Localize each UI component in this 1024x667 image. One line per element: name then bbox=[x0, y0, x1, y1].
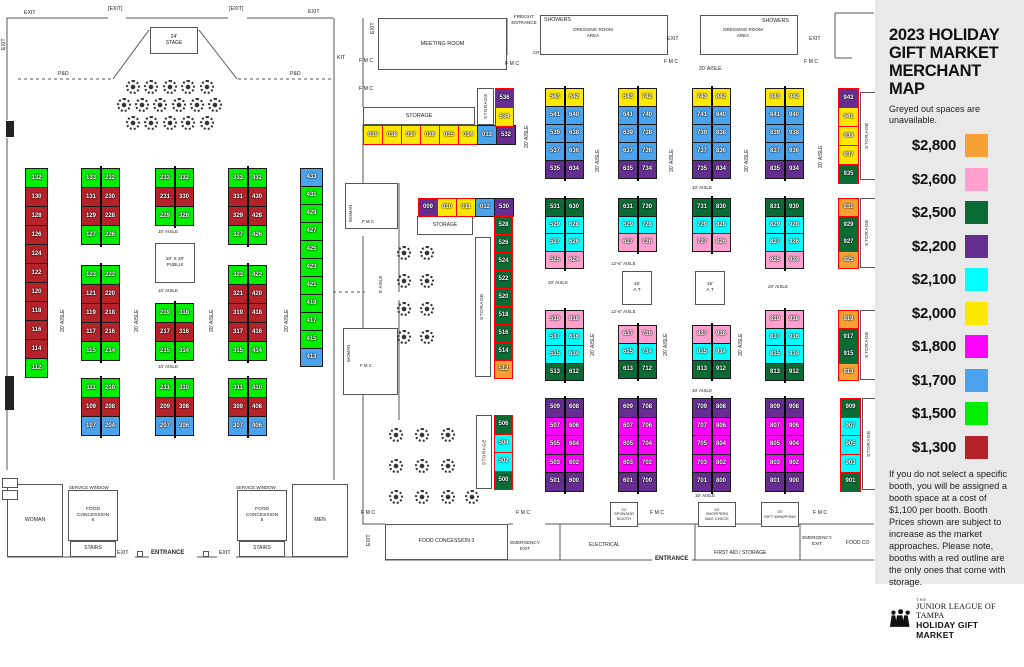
map-label-8-aisle: 8' AISLE bbox=[378, 276, 384, 293]
booth-316[interactable]: 316 bbox=[174, 322, 194, 342]
booth-616[interactable]: 616 bbox=[564, 328, 584, 347]
booth-630[interactable]: 630 bbox=[564, 198, 584, 217]
booth-pair-divider bbox=[637, 396, 639, 494]
booth-204[interactable]: 204 bbox=[100, 416, 120, 436]
booth-314[interactable]: 314 bbox=[174, 341, 194, 361]
booth-706[interactable]: 706 bbox=[637, 417, 657, 437]
booth-701[interactable]: 701 bbox=[692, 472, 712, 492]
booth-612[interactable]: 612 bbox=[564, 363, 584, 382]
booth-809[interactable]: 809 bbox=[765, 398, 785, 418]
booth-315[interactable]: 315 bbox=[228, 341, 248, 361]
booth-705[interactable]: 705 bbox=[692, 435, 712, 455]
booth-429[interactable]: 429 bbox=[300, 204, 323, 223]
booth-pair-divider bbox=[564, 396, 566, 494]
booth-017[interactable]: 017 bbox=[401, 125, 421, 145]
booth-500[interactable]: 500 bbox=[494, 471, 513, 491]
booth-739[interactable]: 739 bbox=[692, 124, 712, 143]
booth-531[interactable]: 531 bbox=[545, 198, 565, 217]
map-label-20-aisle: 20' AISLE bbox=[209, 309, 215, 332]
booth-728[interactable]: 728 bbox=[637, 216, 657, 235]
booth-707[interactable]: 707 bbox=[692, 417, 712, 437]
booth-208[interactable]: 208 bbox=[100, 397, 120, 417]
booth-111[interactable]: 111 bbox=[81, 378, 101, 398]
booth-116[interactable]: 116 bbox=[25, 320, 48, 340]
booth-415[interactable]: 415 bbox=[300, 330, 323, 349]
booth-615[interactable]: 615 bbox=[618, 343, 638, 362]
booth-218[interactable]: 218 bbox=[100, 303, 120, 323]
booth-129[interactable]: 129 bbox=[81, 206, 101, 226]
booth-929[interactable]: 929 bbox=[838, 216, 859, 235]
booth-535[interactable]: 535 bbox=[545, 160, 565, 179]
booth-634[interactable]: 634 bbox=[564, 160, 584, 179]
booth-904[interactable]: 904 bbox=[784, 435, 804, 455]
booth-835[interactable]: 835 bbox=[765, 160, 785, 179]
booth-422[interactable]: 422 bbox=[247, 265, 267, 285]
booth-927[interactable]: 927 bbox=[838, 233, 859, 252]
map-label-woman: WOMAN bbox=[348, 205, 353, 222]
booth-626[interactable]: 626 bbox=[564, 233, 584, 252]
booth-740[interactable]: 740 bbox=[637, 106, 657, 125]
booth-210[interactable]: 210 bbox=[100, 378, 120, 398]
booth-936[interactable]: 936 bbox=[784, 142, 804, 161]
booth-916[interactable]: 916 bbox=[711, 325, 731, 344]
room-food-concession-6: FOOD CONCESSION 6 bbox=[68, 490, 118, 541]
booth-613[interactable]: 613 bbox=[618, 360, 638, 379]
booth-912[interactable]: 912 bbox=[784, 363, 804, 382]
booth-924[interactable]: 924 bbox=[784, 251, 804, 270]
booth-602[interactable]: 602 bbox=[564, 454, 584, 474]
booth-506[interactable]: 506 bbox=[494, 415, 513, 435]
booth-938[interactable]: 938 bbox=[784, 124, 804, 143]
booth-121[interactable]: 121 bbox=[81, 284, 101, 304]
booth-819[interactable]: 819 bbox=[765, 310, 785, 329]
booth-836[interactable]: 836 bbox=[711, 142, 731, 161]
booth-532[interactable]: 532 bbox=[496, 125, 516, 145]
booth-905[interactable]: 905 bbox=[840, 435, 861, 455]
booth-541[interactable]: 541 bbox=[545, 106, 565, 125]
booth-427[interactable]: 427 bbox=[300, 222, 323, 241]
booth-232[interactable]: 232 bbox=[100, 168, 120, 188]
booth-614[interactable]: 614 bbox=[564, 345, 584, 364]
dining-table-icon bbox=[415, 428, 429, 442]
booth-539[interactable]: 539 bbox=[545, 124, 565, 143]
booth-430[interactable]: 430 bbox=[247, 187, 267, 207]
booth-519[interactable]: 519 bbox=[545, 310, 565, 329]
booth-536[interactable]: 536 bbox=[495, 88, 514, 108]
booth-126[interactable]: 126 bbox=[25, 225, 48, 245]
booth-925[interactable]: 925 bbox=[838, 251, 859, 270]
booth-931[interactable]: 931 bbox=[838, 198, 859, 217]
booth-331[interactable]: 331 bbox=[228, 187, 248, 207]
booth-843[interactable]: 843 bbox=[765, 88, 785, 107]
booth-935[interactable]: 935 bbox=[838, 164, 859, 184]
booth-643[interactable]: 643 bbox=[618, 88, 638, 107]
legend-subtitle: Greyed out spaces are unavailable. bbox=[889, 104, 1009, 127]
booth-741[interactable]: 741 bbox=[692, 106, 712, 125]
map-label-showers: SHOWERS bbox=[762, 18, 789, 24]
booth-842[interactable]: 842 bbox=[711, 88, 731, 107]
booth-505[interactable]: 505 bbox=[545, 435, 565, 455]
booth-114[interactable]: 114 bbox=[25, 339, 48, 359]
booth-112[interactable]: 112 bbox=[25, 358, 48, 378]
booth-209[interactable]: 209 bbox=[155, 397, 175, 417]
booth-319[interactable]: 319 bbox=[228, 303, 248, 323]
booth-813[interactable]: 813 bbox=[692, 360, 712, 379]
booth-323[interactable]: 323 bbox=[228, 265, 248, 285]
booth-417[interactable]: 417 bbox=[300, 312, 323, 331]
booth-516[interactable]: 516 bbox=[494, 324, 513, 343]
booth-627[interactable]: 627 bbox=[618, 233, 638, 252]
booth-514[interactable]: 514 bbox=[494, 342, 513, 361]
booth-712[interactable]: 712 bbox=[637, 360, 657, 379]
booth-834[interactable]: 834 bbox=[711, 160, 731, 179]
booth-122[interactable]: 122 bbox=[25, 263, 48, 283]
booth-916[interactable]: 916 bbox=[784, 328, 804, 347]
booth-513[interactable]: 513 bbox=[545, 363, 565, 382]
booth-109[interactable]: 109 bbox=[81, 397, 101, 417]
booth-420[interactable]: 420 bbox=[247, 284, 267, 304]
booth-418[interactable]: 418 bbox=[247, 303, 267, 323]
booth-009[interactable]: 009 bbox=[418, 198, 438, 217]
booth-115[interactable]: 115 bbox=[81, 341, 101, 361]
booth-016[interactable]: 016 bbox=[420, 125, 440, 145]
booth-123[interactable]: 123 bbox=[81, 265, 101, 285]
booth-229[interactable]: 229 bbox=[155, 206, 175, 226]
booth-423[interactable]: 423 bbox=[300, 258, 323, 277]
dining-table-icon bbox=[420, 274, 434, 288]
booth-902[interactable]: 902 bbox=[784, 454, 804, 474]
booth-012[interactable]: 012 bbox=[475, 198, 495, 217]
booth-219[interactable]: 219 bbox=[155, 303, 175, 323]
booth-735[interactable]: 735 bbox=[692, 160, 712, 179]
booth-131[interactable]: 131 bbox=[81, 187, 101, 207]
price-swatch bbox=[965, 369, 988, 392]
booth-726[interactable]: 726 bbox=[637, 233, 657, 252]
booth-943[interactable]: 943 bbox=[838, 88, 859, 108]
booth-734[interactable]: 734 bbox=[637, 160, 657, 179]
booth-310[interactable]: 310 bbox=[174, 378, 194, 398]
booth-117[interactable]: 117 bbox=[81, 322, 101, 342]
room-box bbox=[2, 478, 18, 488]
booth-230[interactable]: 230 bbox=[100, 187, 120, 207]
booth-700[interactable]: 700 bbox=[637, 472, 657, 492]
booth-817[interactable]: 817 bbox=[692, 325, 712, 344]
booth-926[interactable]: 926 bbox=[784, 233, 804, 252]
booth-214[interactable]: 214 bbox=[100, 341, 120, 361]
booth-603[interactable]: 603 bbox=[618, 454, 638, 474]
booth-840[interactable]: 840 bbox=[711, 106, 731, 125]
booth-421[interactable]: 421 bbox=[300, 276, 323, 295]
booth-640[interactable]: 640 bbox=[564, 106, 584, 125]
booth-738[interactable]: 738 bbox=[637, 124, 657, 143]
booth-908[interactable]: 908 bbox=[784, 398, 804, 418]
booth-120[interactable]: 120 bbox=[25, 282, 48, 302]
booth-530[interactable]: 530 bbox=[494, 198, 514, 217]
booth-913[interactable]: 913 bbox=[838, 363, 859, 382]
booth-808[interactable]: 808 bbox=[711, 398, 731, 418]
booth-233[interactable]: 233 bbox=[155, 168, 175, 188]
booth-127[interactable]: 127 bbox=[81, 225, 101, 245]
booth-841[interactable]: 841 bbox=[765, 106, 785, 125]
booth-915[interactable]: 915 bbox=[838, 345, 859, 364]
booth-642[interactable]: 642 bbox=[564, 88, 584, 107]
booth-309[interactable]: 309 bbox=[228, 397, 248, 417]
booth-431[interactable]: 431 bbox=[300, 186, 323, 205]
booth-743[interactable]: 743 bbox=[692, 88, 712, 107]
booth-830[interactable]: 830 bbox=[711, 198, 731, 217]
booth-019[interactable]: 019 bbox=[363, 125, 383, 145]
map-label-f-m-c: F M C bbox=[359, 58, 373, 64]
booth-515[interactable]: 515 bbox=[545, 345, 565, 364]
booth-736[interactable]: 736 bbox=[637, 142, 657, 161]
booth-942[interactable]: 942 bbox=[784, 88, 804, 107]
booth-831[interactable]: 831 bbox=[765, 198, 785, 217]
booth-702[interactable]: 702 bbox=[637, 454, 657, 474]
map-label-f-m-c: F M C bbox=[804, 59, 818, 65]
booth-624[interactable]: 624 bbox=[564, 251, 584, 270]
booth-838[interactable]: 838 bbox=[711, 124, 731, 143]
dining-table-icon bbox=[172, 98, 186, 112]
dining-table-icon bbox=[420, 302, 434, 316]
booth-330[interactable]: 330 bbox=[174, 187, 194, 207]
booth-629[interactable]: 629 bbox=[618, 216, 638, 235]
booth-222[interactable]: 222 bbox=[100, 265, 120, 285]
booth-534[interactable]: 534 bbox=[495, 107, 514, 127]
booth-607[interactable]: 607 bbox=[618, 417, 638, 437]
booth-528[interactable]: 528 bbox=[494, 216, 513, 235]
booth-pair-divider bbox=[174, 301, 176, 363]
booth-217[interactable]: 217 bbox=[155, 322, 175, 342]
booth-413[interactable]: 413 bbox=[300, 348, 323, 367]
booth-801[interactable]: 801 bbox=[765, 472, 785, 492]
booth-729[interactable]: 729 bbox=[692, 216, 712, 235]
booth-906[interactable]: 906 bbox=[784, 417, 804, 437]
booth-907[interactable]: 907 bbox=[840, 417, 861, 437]
booth-903[interactable]: 903 bbox=[840, 454, 861, 474]
dining-table-icon bbox=[397, 274, 411, 288]
booth-504[interactable]: 504 bbox=[494, 434, 513, 454]
booth-605[interactable]: 605 bbox=[618, 435, 638, 455]
booth-917[interactable]: 917 bbox=[838, 328, 859, 347]
booth-802[interactable]: 802 bbox=[711, 454, 731, 474]
booth-600[interactable]: 600 bbox=[564, 472, 584, 492]
booth-703[interactable]: 703 bbox=[692, 454, 712, 474]
booth-918[interactable]: 918 bbox=[784, 310, 804, 329]
booth-813[interactable]: 813 bbox=[765, 363, 785, 382]
booth-220[interactable]: 220 bbox=[100, 284, 120, 304]
booth-327[interactable]: 327 bbox=[228, 225, 248, 245]
booth-803[interactable]: 803 bbox=[765, 454, 785, 474]
booth-800[interactable]: 800 bbox=[711, 472, 731, 492]
booth-543[interactable]: 543 bbox=[545, 88, 565, 107]
booth-934[interactable]: 934 bbox=[784, 160, 804, 179]
booth-537[interactable]: 537 bbox=[545, 142, 565, 161]
booth-637[interactable]: 637 bbox=[618, 142, 638, 161]
booth-018[interactable]: 018 bbox=[382, 125, 402, 145]
booth-709[interactable]: 709 bbox=[692, 398, 712, 418]
booth-317[interactable]: 317 bbox=[228, 322, 248, 342]
booth-216[interactable]: 216 bbox=[100, 322, 120, 342]
map-label-dressing-room-area: DRESSING ROOM AREA bbox=[720, 27, 766, 38]
booth-641[interactable]: 641 bbox=[618, 106, 638, 125]
booth-522[interactable]: 522 bbox=[494, 270, 513, 289]
booth-118[interactable]: 118 bbox=[25, 301, 48, 321]
booth-628[interactable]: 628 bbox=[564, 216, 584, 235]
dining-table-icon bbox=[144, 80, 158, 94]
booth-321[interactable]: 321 bbox=[228, 284, 248, 304]
booth-930[interactable]: 930 bbox=[784, 198, 804, 217]
booth-308[interactable]: 308 bbox=[174, 397, 194, 417]
booth-014[interactable]: 014 bbox=[458, 125, 478, 145]
booth-311[interactable]: 311 bbox=[228, 378, 248, 398]
booth-132[interactable]: 132 bbox=[25, 168, 48, 188]
booth-618[interactable]: 618 bbox=[564, 310, 584, 329]
booth-826[interactable]: 826 bbox=[711, 233, 731, 252]
booth-215[interactable]: 215 bbox=[155, 341, 175, 361]
booth-815[interactable]: 815 bbox=[765, 345, 785, 364]
booth-731[interactable]: 731 bbox=[692, 198, 712, 217]
booth-501[interactable]: 501 bbox=[545, 472, 565, 492]
booth-107[interactable]: 107 bbox=[81, 416, 101, 436]
booth-119[interactable]: 119 bbox=[81, 303, 101, 323]
booth-329[interactable]: 329 bbox=[228, 206, 248, 226]
booth-507[interactable]: 507 bbox=[545, 417, 565, 437]
price-swatch bbox=[965, 302, 988, 325]
booth-829[interactable]: 829 bbox=[765, 216, 785, 235]
dining-table-icon bbox=[181, 116, 195, 130]
booth-606[interactable]: 606 bbox=[564, 417, 584, 437]
booth-207[interactable]: 207 bbox=[155, 416, 175, 436]
booth-928[interactable]: 928 bbox=[784, 216, 804, 235]
booth-704[interactable]: 704 bbox=[637, 435, 657, 455]
booth-817[interactable]: 817 bbox=[765, 328, 785, 347]
booth-827[interactable]: 827 bbox=[765, 233, 785, 252]
booth-pair-divider bbox=[100, 263, 102, 363]
booth-825[interactable]: 825 bbox=[765, 251, 785, 270]
booth-742[interactable]: 742 bbox=[637, 88, 657, 107]
booth-730[interactable]: 730 bbox=[637, 198, 657, 217]
booth-130[interactable]: 130 bbox=[25, 187, 48, 207]
booth-919[interactable]: 919 bbox=[838, 310, 859, 329]
room-storage: STORAGE bbox=[363, 107, 475, 125]
booth-228[interactable]: 228 bbox=[100, 206, 120, 226]
booth-601[interactable]: 601 bbox=[618, 472, 638, 492]
booth-433[interactable]: 433 bbox=[300, 168, 323, 187]
booth-128[interactable]: 128 bbox=[25, 206, 48, 226]
booth-509[interactable]: 509 bbox=[545, 398, 565, 418]
dining-table-icon bbox=[397, 302, 411, 316]
booth-517[interactable]: 517 bbox=[545, 328, 565, 347]
booth-226[interactable]: 226 bbox=[100, 225, 120, 245]
booth-318[interactable]: 318 bbox=[174, 303, 194, 323]
booth-839[interactable]: 839 bbox=[765, 124, 785, 143]
booth-406[interactable]: 406 bbox=[247, 416, 267, 436]
booth-939[interactable]: 939 bbox=[838, 126, 859, 146]
booth-609[interactable]: 609 bbox=[618, 398, 638, 418]
booth-428[interactable]: 428 bbox=[247, 206, 267, 226]
booth-727[interactable]: 727 bbox=[692, 233, 712, 252]
booth-805[interactable]: 805 bbox=[765, 435, 785, 455]
booth-716[interactable]: 716 bbox=[637, 325, 657, 344]
booth-015[interactable]: 015 bbox=[439, 125, 459, 145]
booth-900[interactable]: 900 bbox=[784, 472, 804, 492]
booth-408[interactable]: 408 bbox=[247, 397, 267, 417]
booth-526[interactable]: 526 bbox=[494, 234, 513, 253]
booth-714[interactable]: 714 bbox=[637, 343, 657, 362]
booth-901[interactable]: 901 bbox=[840, 472, 861, 492]
booth-425[interactable]: 425 bbox=[300, 240, 323, 259]
booth-503[interactable]: 503 bbox=[545, 454, 565, 474]
map-label-exit: EXIT bbox=[809, 36, 821, 42]
booth-133[interactable]: 133 bbox=[81, 168, 101, 188]
booth-426[interactable]: 426 bbox=[247, 225, 267, 245]
booth-604[interactable]: 604 bbox=[564, 435, 584, 455]
booth-306[interactable]: 306 bbox=[174, 416, 194, 436]
booth-416[interactable]: 416 bbox=[247, 322, 267, 342]
room-storage: STORAGE bbox=[476, 415, 492, 489]
booth-638[interactable]: 638 bbox=[564, 124, 584, 143]
booth-636[interactable]: 636 bbox=[564, 142, 584, 161]
price-swatch bbox=[965, 168, 988, 191]
booth-124[interactable]: 124 bbox=[25, 244, 48, 264]
booth-525[interactable]: 525 bbox=[545, 251, 565, 270]
booth-815[interactable]: 815 bbox=[692, 343, 712, 362]
booth-937[interactable]: 937 bbox=[838, 145, 859, 165]
booth-211[interactable]: 211 bbox=[155, 378, 175, 398]
booth-520[interactable]: 520 bbox=[494, 288, 513, 307]
booth-333[interactable]: 333 bbox=[228, 168, 248, 188]
booth-328[interactable]: 328 bbox=[174, 206, 194, 226]
booth-828[interactable]: 828 bbox=[711, 216, 731, 235]
booth-529[interactable]: 529 bbox=[545, 216, 565, 235]
booth-pair-divider bbox=[784, 396, 786, 494]
booth-010[interactable]: 010 bbox=[437, 198, 457, 217]
booth-414[interactable]: 414 bbox=[247, 341, 267, 361]
booth-502[interactable]: 502 bbox=[494, 452, 513, 472]
booth-231[interactable]: 231 bbox=[155, 187, 175, 207]
booth-737[interactable]: 737 bbox=[692, 142, 712, 161]
booth-307[interactable]: 307 bbox=[228, 416, 248, 436]
booth-635[interactable]: 635 bbox=[618, 160, 638, 179]
booth-639[interactable]: 639 bbox=[618, 124, 638, 143]
price-row: $2,000 bbox=[889, 302, 1014, 326]
booth-806[interactable]: 806 bbox=[711, 417, 731, 437]
booth-432[interactable]: 432 bbox=[247, 168, 267, 188]
booth-940[interactable]: 940 bbox=[784, 106, 804, 125]
booth-527[interactable]: 527 bbox=[545, 233, 565, 252]
booth-708[interactable]: 708 bbox=[637, 398, 657, 418]
booth-631[interactable]: 631 bbox=[618, 198, 638, 217]
booth-332[interactable]: 332 bbox=[174, 168, 194, 188]
booth-914[interactable]: 914 bbox=[784, 345, 804, 364]
booth-608[interactable]: 608 bbox=[564, 398, 584, 418]
booth-909[interactable]: 909 bbox=[840, 398, 861, 418]
booth-804[interactable]: 804 bbox=[711, 435, 731, 455]
booth-524[interactable]: 524 bbox=[494, 252, 513, 271]
booth-912[interactable]: 912 bbox=[711, 360, 731, 379]
booth-914[interactable]: 914 bbox=[711, 343, 731, 362]
booth-941[interactable]: 941 bbox=[838, 107, 859, 127]
booth-807[interactable]: 807 bbox=[765, 417, 785, 437]
booth-410[interactable]: 410 bbox=[247, 378, 267, 398]
booth-617[interactable]: 617 bbox=[618, 325, 638, 344]
booth-011[interactable]: 011 bbox=[456, 198, 476, 217]
booth-518[interactable]: 518 bbox=[494, 306, 513, 325]
booth-013[interactable]: 013 bbox=[477, 125, 497, 145]
booth-512[interactable]: 512 bbox=[494, 360, 513, 379]
booth-419[interactable]: 419 bbox=[300, 294, 323, 313]
booth-837[interactable]: 837 bbox=[765, 142, 785, 161]
